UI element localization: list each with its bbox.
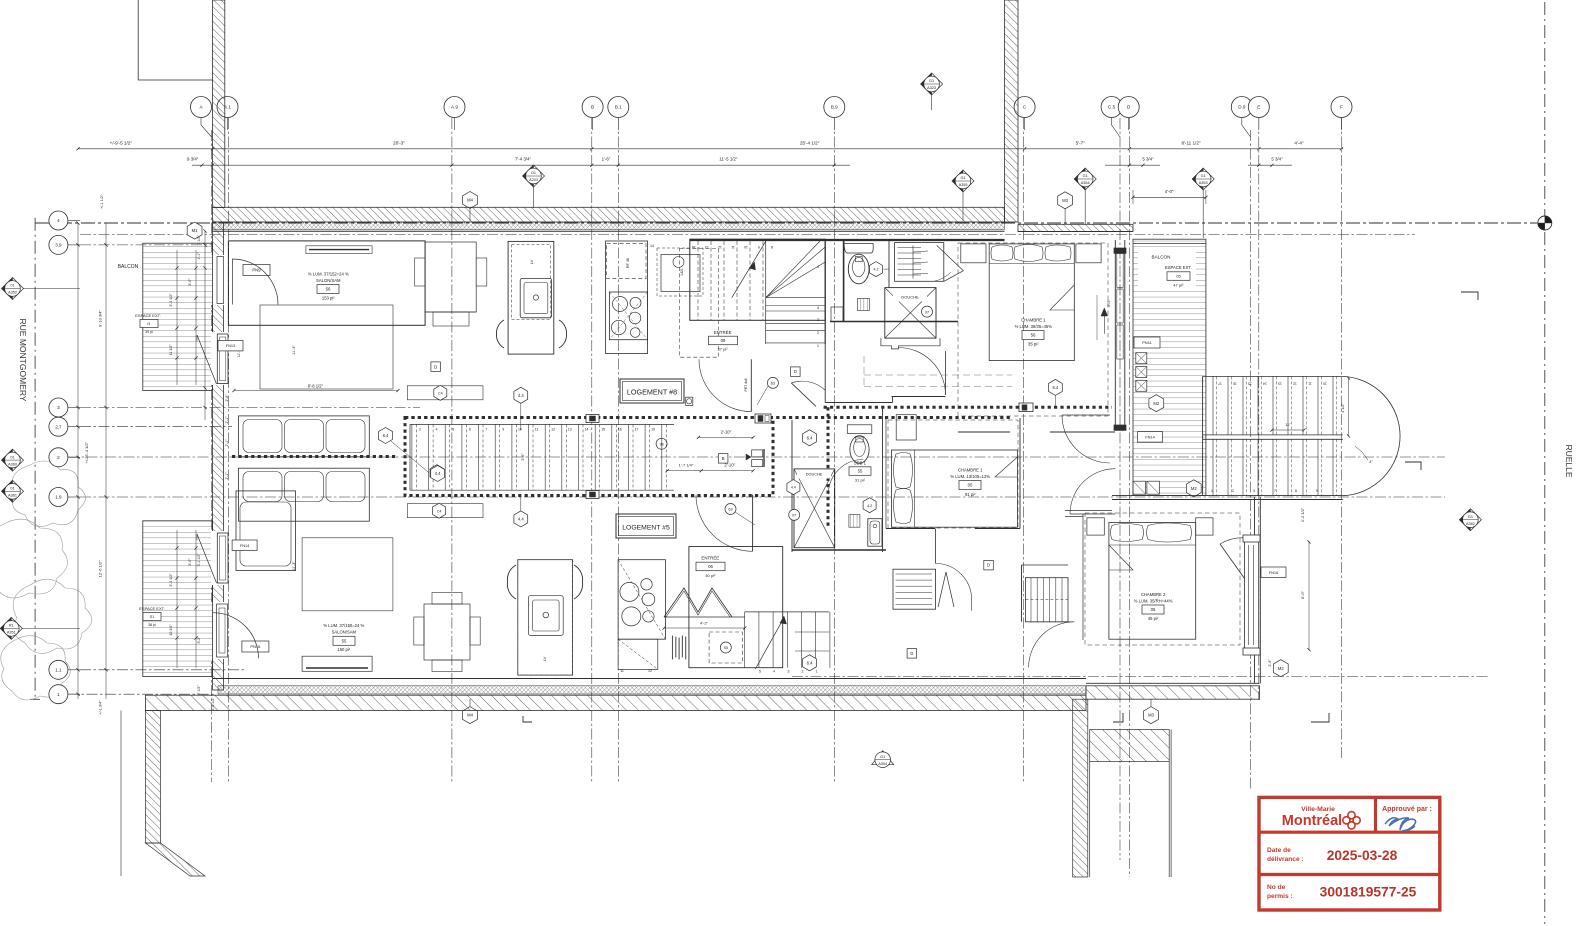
svg-text:FN14: FN14 [240, 543, 250, 548]
svg-text:délivrance :: délivrance : [1267, 856, 1304, 863]
svg-text:55: 55 [342, 638, 347, 643]
svg-text:1.9: 1.9 [55, 495, 62, 500]
svg-text:11: 11 [731, 245, 735, 249]
svg-text:2'-1": 2'-1" [225, 472, 229, 480]
svg-text:BALCON: BALCON [118, 264, 139, 270]
svg-text:D: D [987, 563, 990, 568]
svg-text:19: 19 [651, 428, 655, 432]
svg-text:CHAMBRE 1: CHAMBRE 1 [1021, 318, 1046, 323]
svg-text:6'-9": 6'-9" [1107, 299, 1111, 307]
svg-text:15: 15 [601, 428, 605, 432]
svg-text:16: 16 [1233, 382, 1237, 386]
svg-text:A360: A360 [8, 462, 17, 466]
svg-text:55: 55 [858, 469, 863, 474]
svg-text:4'-4": 4'-4" [1294, 141, 1304, 146]
svg-text:1.1: 1.1 [55, 668, 62, 673]
svg-text:PN16: PN16 [250, 644, 261, 649]
svg-text:11": 11" [1285, 422, 1291, 427]
svg-text:No de: No de [1267, 884, 1286, 891]
svg-text:63: 63 [771, 382, 775, 386]
svg-text:LV: LV [542, 656, 547, 661]
svg-text:1'-6": 1'-6" [602, 157, 611, 162]
svg-text:4: 4 [436, 428, 438, 432]
svg-text:6.4: 6.4 [807, 435, 813, 440]
svg-text:3: 3 [787, 670, 789, 674]
svg-text:% LUM. 35/RH=44%: % LUM. 35/RH=44% [1134, 598, 1173, 603]
svg-text:30 pi²: 30 pi² [705, 573, 716, 578]
svg-text:4.4: 4.4 [518, 393, 524, 398]
svg-text:5: 5 [452, 428, 454, 432]
svg-text:8: 8 [771, 245, 773, 249]
svg-text:4: 4 [57, 218, 60, 223]
svg-text:38 pi: 38 pi [148, 623, 156, 627]
svg-text:ENTRÉE: ENTRÉE [714, 330, 732, 335]
svg-text:45 pi²: 45 pi² [1148, 616, 1159, 621]
svg-text:3'-0": 3'-0" [188, 558, 192, 566]
svg-text:C4: C4 [438, 391, 443, 395]
svg-text:M4: M4 [467, 713, 473, 718]
svg-text:ESPACE EXT.: ESPACE EXT. [139, 606, 165, 611]
svg-text:5'-7": 5'-7" [1076, 141, 1086, 146]
svg-text:4: 4 [817, 306, 819, 310]
svg-text:11: 11 [620, 669, 624, 673]
svg-text:R1: R1 [9, 624, 14, 628]
svg-text:FN14: FN14 [1145, 435, 1155, 440]
svg-text:CHAMBRE 1: CHAMBRE 1 [958, 467, 983, 472]
svg-text:7'-4 3/4": 7'-4 3/4" [515, 157, 532, 162]
svg-text:47 pi²: 47 pi² [1173, 282, 1184, 287]
svg-text:16: 16 [618, 428, 622, 432]
svg-text:A361: A361 [8, 494, 17, 498]
svg-text:RUELLE: RUELLE [1564, 444, 1574, 477]
svg-text:12: 12 [718, 245, 722, 249]
svg-text:B: B [722, 456, 725, 461]
svg-text:25'-4 1/2": 25'-4 1/2" [800, 141, 820, 146]
svg-text:10: 10 [1323, 382, 1327, 386]
svg-text:4: 4 [817, 265, 819, 269]
svg-text:17: 17 [635, 428, 639, 432]
svg-text:FN16: FN16 [1269, 570, 1279, 575]
svg-text:PRT 4x8: PRT 4x8 [744, 378, 748, 391]
svg-text:RUE MONTGOMERY: RUE MONTGOMERY [18, 319, 28, 402]
svg-text:3'-1 1/2": 3'-1 1/2" [169, 293, 173, 307]
svg-text:14: 14 [585, 428, 589, 432]
svg-text:SALON/SAM: SALON/SAM [316, 278, 341, 283]
svg-text:98: 98 [660, 443, 664, 447]
svg-text:7: 7 [1274, 489, 1276, 493]
svg-text:LV: LV [529, 259, 534, 264]
svg-text:3: 3 [1253, 489, 1255, 493]
svg-text:Montréal: Montréal [1282, 813, 1342, 829]
svg-text:BALCON: BALCON [1152, 255, 1171, 260]
svg-text:9: 9 [758, 245, 760, 249]
svg-text:8'-11 1/2": 8'-11 1/2" [1181, 141, 1200, 146]
svg-text:A203: A203 [529, 178, 538, 182]
svg-text:1: 1 [57, 692, 60, 697]
svg-text:ENTRÉE: ENTRÉE [701, 556, 719, 561]
svg-text:L&S: L&S [680, 268, 684, 275]
svg-text:14: 14 [1263, 382, 1267, 386]
svg-text:ESPACE EXT.: ESPACE EXT. [1165, 265, 1192, 270]
svg-text:A355: A355 [959, 183, 968, 187]
svg-text:PN11: PN11 [1142, 340, 1152, 345]
svg-text:G1: G1 [960, 176, 965, 180]
svg-text:1'-1": 1'-1" [197, 252, 201, 260]
svg-text:39 pi: 39 pi [145, 330, 153, 334]
svg-text:2'-1": 2'-1" [225, 439, 229, 447]
svg-text:C.5: C.5 [1108, 105, 1116, 110]
svg-text:4.4: 4.4 [791, 486, 796, 490]
svg-text:LOGEMENT #5: LOGEMENT #5 [622, 525, 670, 532]
svg-text:C4: C4 [437, 509, 442, 513]
svg-text:150 pi²: 150 pi² [337, 647, 350, 652]
svg-text:G1: G1 [1201, 174, 1206, 178]
svg-text:6.4: 6.4 [807, 660, 813, 665]
svg-text:2: 2 [817, 331, 819, 335]
svg-text:2025-03-28: 2025-03-28 [1327, 848, 1398, 863]
svg-text:5: 5 [759, 670, 761, 674]
svg-text:A304: A304 [878, 762, 887, 766]
svg-text:7 1/2": 7 1/2" [197, 685, 201, 695]
svg-text:1'-6 1/2": 1'-6 1/2" [211, 697, 215, 711]
svg-text:ESPACE EXT.: ESPACE EXT. [135, 313, 161, 318]
svg-text:f1: f1 [147, 322, 150, 326]
svg-text:10 3/4": 10 3/4" [169, 624, 173, 636]
svg-text:D: D [910, 651, 913, 656]
svg-text:5 3/4": 5 3/4" [1142, 157, 1154, 162]
svg-text:7 1/2": 7 1/2" [197, 235, 201, 245]
svg-text:11'-5 1/2": 11'-5 1/2" [719, 157, 738, 162]
svg-text:A353: A353 [1199, 181, 1208, 185]
svg-text:6.4: 6.4 [383, 433, 389, 438]
svg-text:2: 2 [1232, 489, 1234, 493]
svg-text:FN13: FN13 [226, 343, 236, 348]
svg-text:9 3/4": 9 3/4" [187, 157, 199, 162]
svg-text:RF 36: RF 36 [626, 258, 630, 268]
svg-text:4.4: 4.4 [518, 517, 524, 522]
svg-text:3'-2": 3'-2" [197, 636, 201, 644]
svg-text:S1: S1 [150, 615, 155, 619]
svg-text:12: 12 [648, 669, 652, 673]
svg-text:1'-7 1/4": 1'-7 1/4" [679, 463, 694, 468]
svg-text:4'-0": 4'-0" [1165, 189, 1174, 194]
svg-text:4 1/2": 4 1/2" [1341, 403, 1345, 413]
svg-text:10: 10 [744, 245, 748, 249]
svg-text:2'-1": 2'-1" [225, 416, 229, 424]
svg-text:M2: M2 [1191, 486, 1197, 491]
svg-text:07: 07 [925, 310, 929, 314]
svg-text:A323: A323 [927, 86, 936, 90]
svg-text:A351: A351 [7, 631, 16, 635]
svg-text:2: 2 [419, 428, 421, 432]
svg-text:12'-6 1/2": 12'-6 1/2" [98, 560, 103, 577]
svg-text:4.2: 4.2 [867, 504, 872, 508]
svg-text:35 pi²: 35 pi² [1028, 342, 1039, 347]
svg-text:S5: S5 [724, 646, 728, 650]
svg-text:M4: M4 [467, 198, 473, 203]
svg-text:G1: G1 [880, 755, 885, 759]
svg-text:8'-8 1/2": 8'-8 1/2" [308, 383, 324, 388]
svg-text:11'-3": 11'-3" [292, 345, 296, 355]
svg-text:B: B [591, 105, 594, 110]
svg-text:05: 05 [1176, 274, 1181, 279]
svg-text:2'-10": 2'-10" [724, 463, 735, 468]
svg-text:2: 2 [57, 455, 60, 460]
svg-text:4: 4 [773, 670, 775, 674]
svg-text:+/-1 3/4": +/-1 3/4" [99, 700, 103, 715]
svg-text:2: 2 [802, 670, 804, 674]
svg-text:8: 8 [1295, 489, 1297, 493]
svg-text:A382: A382 [1466, 522, 1475, 526]
svg-text:56: 56 [326, 287, 331, 292]
svg-text:2'-2 1/2": 2'-2 1/2" [1300, 507, 1305, 522]
svg-text:15: 15 [1248, 382, 1252, 386]
svg-text:A352: A352 [8, 291, 17, 295]
svg-text:Date de: Date de [1267, 847, 1291, 854]
svg-text:31 pi²: 31 pi² [855, 477, 866, 482]
svg-text:06: 06 [708, 564, 713, 569]
svg-text:3: 3 [817, 318, 819, 322]
svg-text:05: 05 [1151, 607, 1156, 612]
svg-text:+/-9'-5 1/2": +/-9'-5 1/2" [110, 141, 133, 146]
svg-text:3'-0": 3'-0" [188, 278, 192, 286]
svg-text:01: 01 [10, 487, 14, 491]
svg-text:3001819577-25: 3001819577-25 [1320, 885, 1417, 900]
svg-text:07: 07 [792, 514, 796, 518]
svg-text:% LUM. 13/105=12%: % LUM. 13/105=12% [950, 474, 990, 479]
svg-text:M3: M3 [1062, 198, 1068, 203]
svg-text:3'-6": 3'-6" [521, 453, 525, 461]
svg-text:01: 01 [10, 455, 14, 459]
svg-text:20'-3": 20'-3" [393, 141, 405, 146]
svg-text:05: 05 [968, 483, 973, 488]
svg-text:G1: G1 [1468, 515, 1473, 519]
svg-text:A354: A354 [1081, 181, 1090, 185]
svg-text:3: 3 [57, 405, 60, 410]
svg-text:% LUM. 37/150=24 %: % LUM. 37/150=24 % [323, 623, 364, 628]
svg-text:B.9: B.9 [831, 105, 838, 110]
svg-text:2'-9": 2'-9" [1268, 659, 1272, 667]
svg-text:12: 12 [551, 428, 555, 432]
svg-text:LOGEMENT #8: LOGEMENT #8 [627, 388, 677, 397]
svg-text:12: 12 [1293, 382, 1297, 386]
svg-text:153 pi²: 153 pi² [322, 295, 335, 300]
svg-text:10: 10 [518, 428, 522, 432]
svg-text:11: 11 [535, 428, 539, 432]
svg-text:G1: G1 [531, 171, 536, 175]
svg-text:CHAMBRE 2: CHAMBRE 2 [1141, 592, 1166, 597]
svg-text:6.4: 6.4 [1052, 385, 1058, 390]
svg-text:M3: M3 [1148, 713, 1154, 718]
svg-text:D.9: D.9 [1238, 105, 1246, 110]
svg-text:permis :: permis : [1267, 893, 1293, 900]
svg-text:4.4: 4.4 [435, 471, 441, 476]
svg-text:2.7: 2.7 [55, 424, 62, 429]
svg-text:G1: G1 [929, 79, 934, 83]
svg-text:7: 7 [486, 428, 488, 432]
svg-text:B.1: B.1 [615, 105, 622, 110]
svg-text:M2: M2 [1278, 666, 1284, 671]
svg-text:SALON/SAM: SALON/SAM [332, 630, 357, 635]
svg-text:Ville-Marie: Ville-Marie [1301, 806, 1335, 813]
svg-text:DOUCHE: DOUCHE [901, 295, 919, 300]
svg-text:Approuvé par :: Approuvé par : [1382, 806, 1432, 813]
svg-text:01: 01 [10, 284, 14, 288]
svg-text:% LUM. 38/35=45%: % LUM. 38/35=45% [1015, 324, 1053, 329]
svg-text:M1: M1 [192, 228, 198, 233]
svg-text:3'-1 1/2": 3'-1 1/2" [197, 553, 201, 567]
svg-text:4.2: 4.2 [874, 268, 879, 272]
svg-text:SDB 1: SDB 1 [854, 461, 867, 466]
svg-text:+/-25'-4 1/2": +/-25'-4 1/2" [84, 441, 89, 463]
svg-text:4'-2": 4'-2" [700, 621, 709, 626]
svg-text:1: 1 [1211, 489, 1213, 493]
svg-text:D: D [434, 364, 437, 369]
svg-text:09: 09 [721, 338, 726, 343]
svg-text:13: 13 [1278, 382, 1282, 386]
svg-text:17: 17 [1218, 382, 1222, 386]
svg-text:13: 13 [568, 428, 572, 432]
svg-text:DOUCHE: DOUCHE [806, 473, 823, 477]
svg-text:3.9: 3.9 [55, 243, 62, 248]
svg-text:% LUM. 37/152=24 %: % LUM. 37/152=24 % [308, 271, 349, 276]
svg-text:A.9: A.9 [451, 105, 458, 110]
svg-text:8'-0": 8'-0" [1300, 591, 1305, 599]
svg-text:9'-10 3/4": 9'-10 3/4" [98, 309, 103, 326]
svg-text:1: 1 [817, 344, 819, 348]
svg-text:3'-1 1/2": 3'-1 1/2" [169, 573, 173, 587]
svg-text:1: 1 [816, 670, 818, 674]
svg-text:F: F [1340, 105, 1343, 110]
svg-text:27 pi²: 27 pi² [718, 347, 729, 352]
svg-text:5 3/4": 5 3/4" [1271, 157, 1283, 162]
svg-text:11: 11 [1308, 382, 1312, 386]
svg-text:2'-8": 2'-8" [225, 394, 229, 402]
svg-text:2'-10": 2'-10" [721, 429, 732, 434]
svg-text:+/-1 1/2": +/-1 1/2" [100, 194, 104, 209]
svg-text:9: 9 [502, 428, 504, 432]
svg-text:91 pi²: 91 pi² [965, 492, 976, 497]
svg-text:M2: M2 [1153, 401, 1159, 406]
svg-text:G1: G1 [1083, 174, 1088, 178]
svg-text:D: D [794, 369, 797, 374]
svg-text:9: 9 [1316, 489, 1318, 493]
svg-text:14: 14 [650, 244, 654, 248]
svg-text:56: 56 [1031, 333, 1036, 338]
svg-text:E: E [1257, 105, 1260, 110]
svg-text:6: 6 [469, 428, 471, 432]
svg-text:63: 63 [728, 508, 732, 512]
svg-text:11 1/2": 11 1/2" [169, 344, 173, 356]
